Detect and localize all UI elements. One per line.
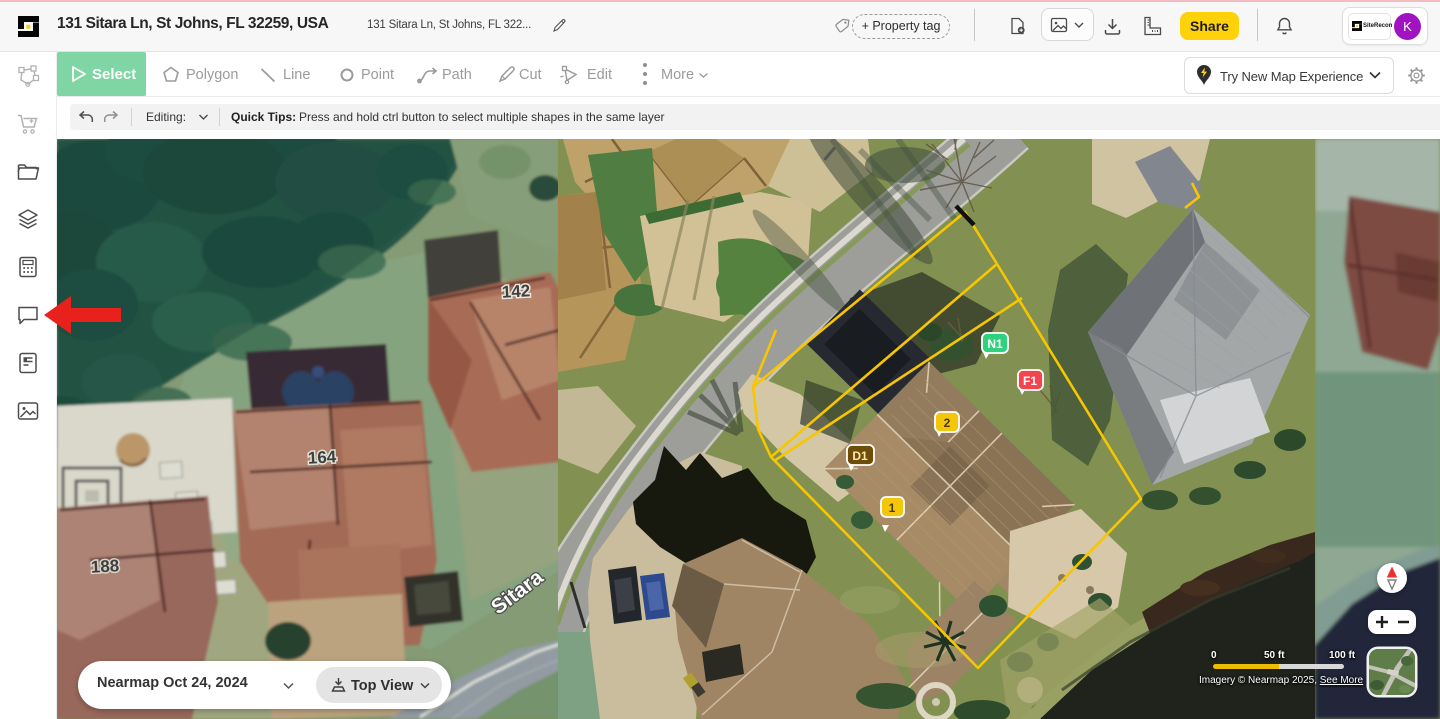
svg-text:188: 188	[90, 556, 119, 576]
svg-text:164: 164	[307, 447, 337, 467]
svg-text:D1: D1	[852, 449, 868, 463]
svg-text:N1: N1	[987, 337, 1003, 351]
svg-text:142: 142	[501, 281, 530, 301]
svg-text:1: 1	[889, 501, 896, 515]
svg-text:2: 2	[944, 416, 951, 430]
svg-text:F1: F1	[1023, 374, 1037, 388]
